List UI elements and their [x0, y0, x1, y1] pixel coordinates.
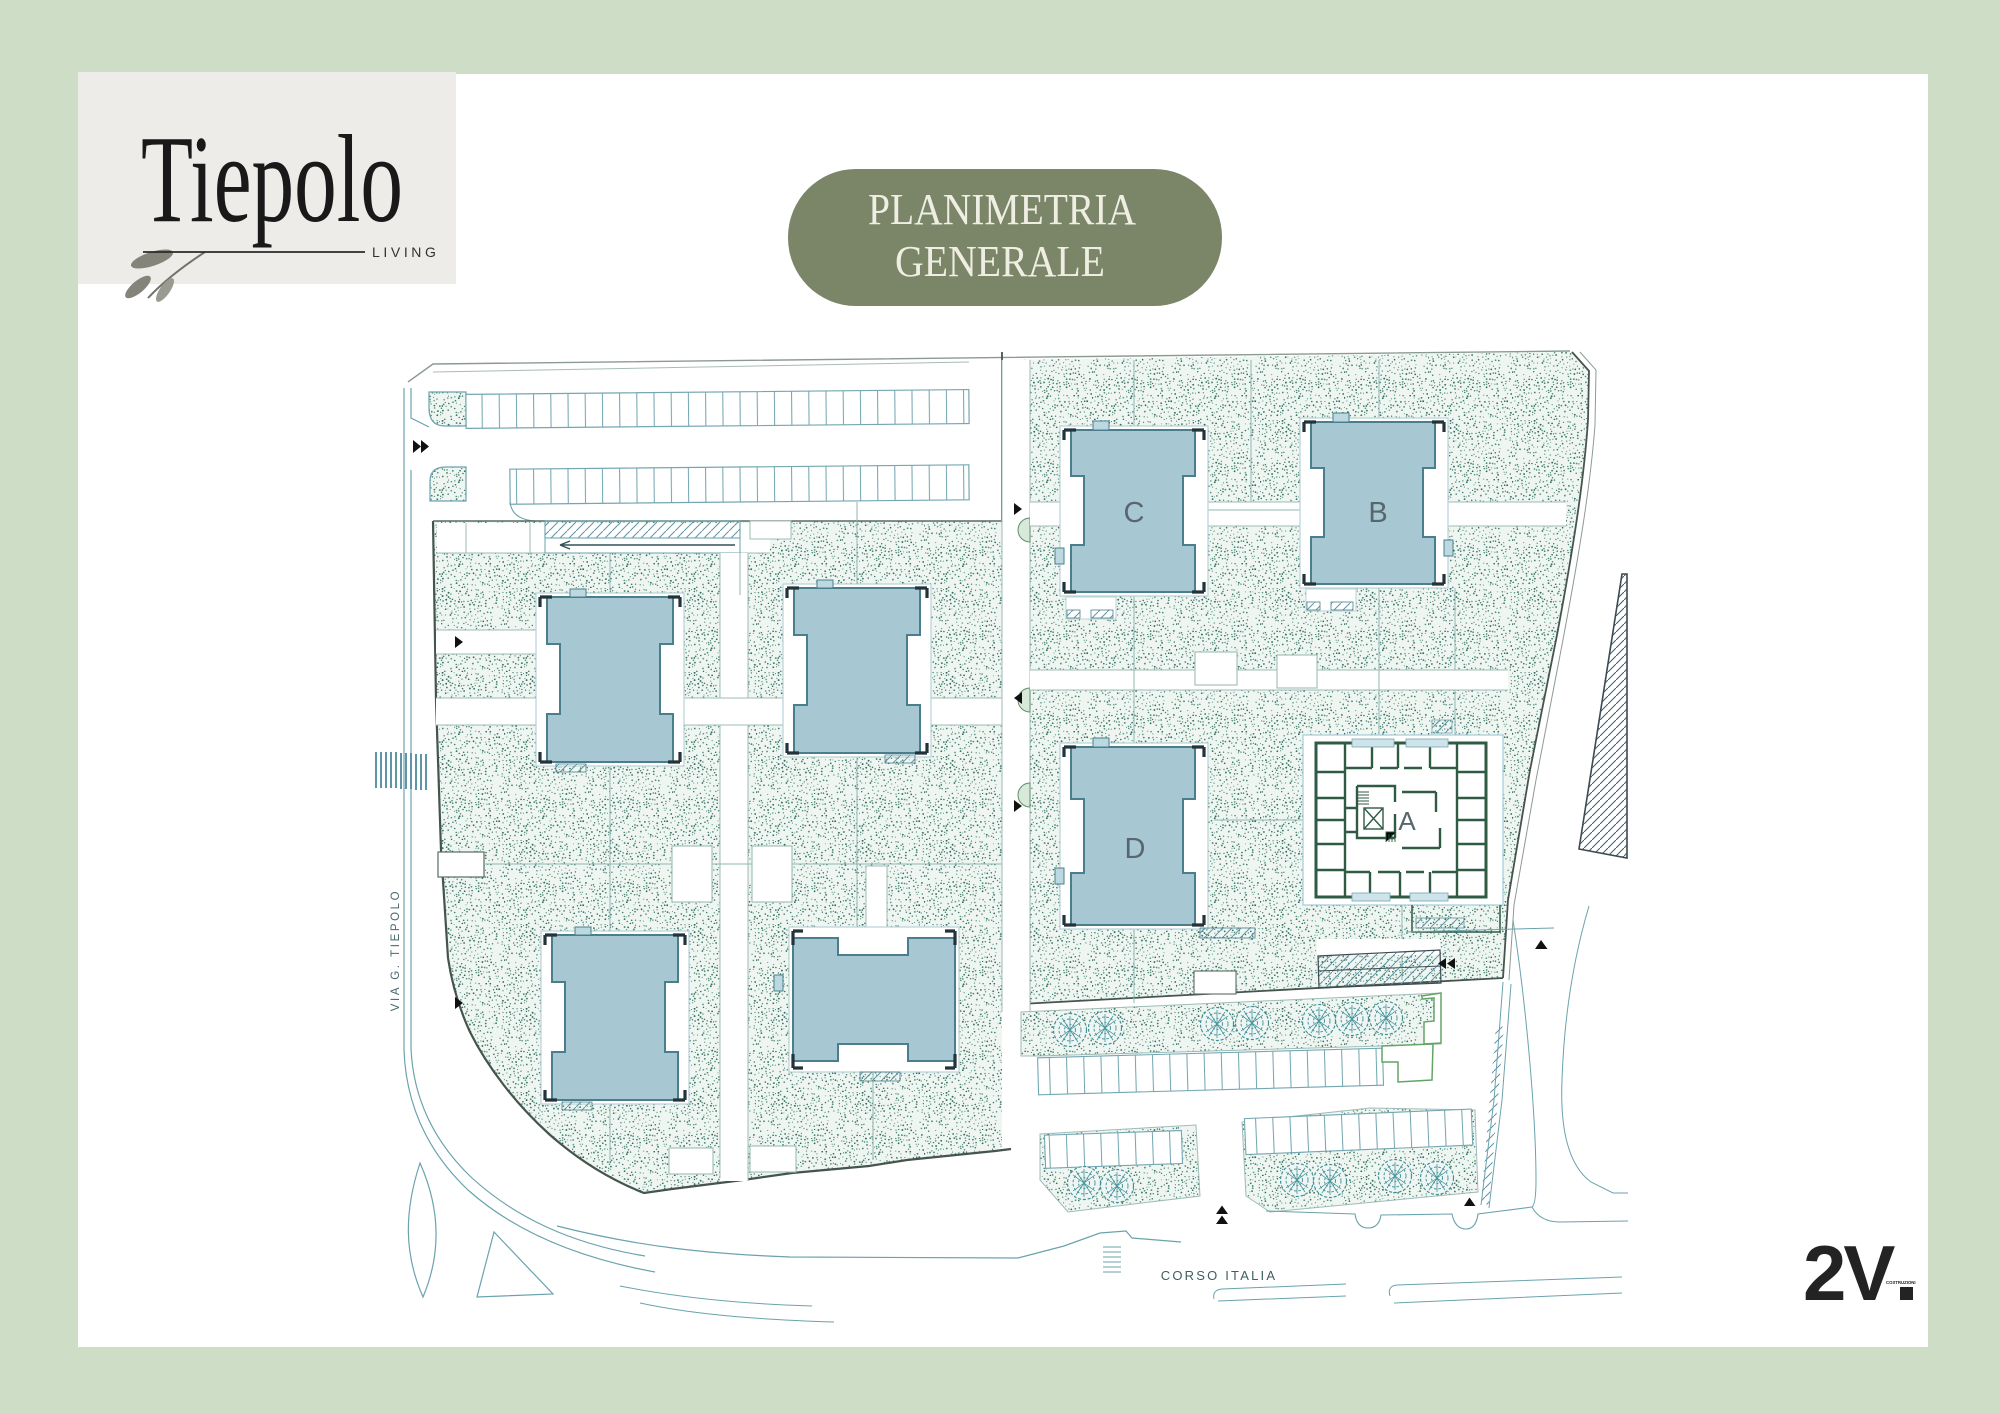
svg-text:D: D: [1125, 833, 1146, 865]
svg-text:CORSO ITALIA: CORSO ITALIA: [1161, 1268, 1277, 1283]
svg-text:B: B: [1368, 497, 1387, 529]
svg-text:VIA G. TIEPOLO: VIA G. TIEPOLO: [390, 889, 402, 1011]
svg-text:PLANIMETRIA: PLANIMETRIA: [868, 185, 1136, 234]
svg-text:COSTRUZIONI: COSTRUZIONI: [1886, 1280, 1916, 1285]
svg-text:GENERALE: GENERALE: [895, 237, 1105, 286]
svg-text:A: A: [1398, 806, 1416, 836]
svg-text:Tiepolo: Tiepolo: [141, 111, 403, 249]
svg-text:2V: 2V: [1803, 1229, 1895, 1317]
svg-text:LIVING: LIVING: [372, 244, 440, 260]
svg-text:C: C: [1124, 497, 1145, 529]
